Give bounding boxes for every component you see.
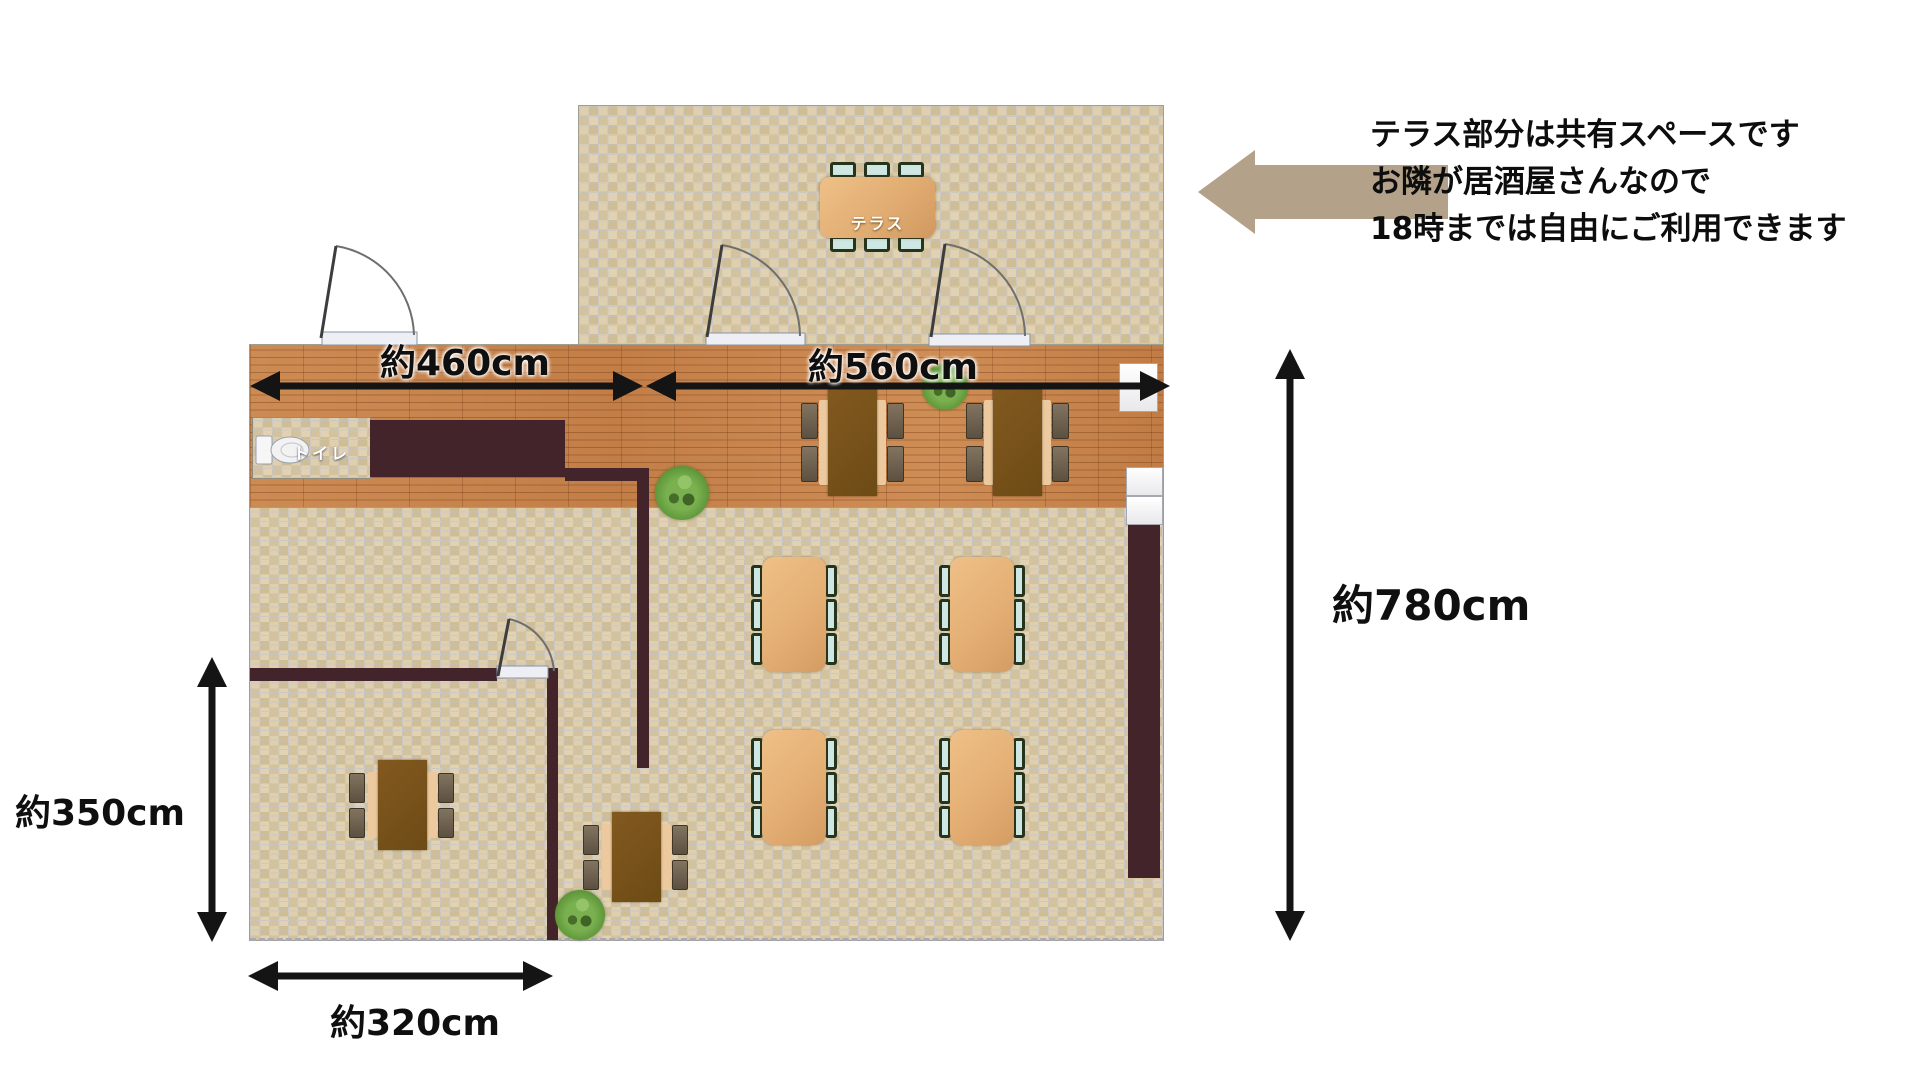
chair [898,236,924,252]
chair [864,236,890,252]
chair [825,738,837,770]
terrace-table-label: テラス [820,210,935,234]
chair [864,162,890,178]
dimension-label-560: 約560cm [808,338,978,390]
chair [1013,599,1025,631]
chair [801,446,818,482]
chair [1013,772,1025,804]
window-box [1119,363,1158,412]
plan-bottom-boundary [250,938,1163,941]
chair [966,446,983,482]
door-top-left [321,246,417,345]
chair [1052,446,1069,482]
chair [1013,738,1025,770]
left-room-right-wall [547,668,558,940]
chair [825,599,837,631]
dimension-label-350: 約350cm [15,784,185,836]
dining-table [762,730,826,845]
annotation-line-3: 18時までは自由にご利用できます [1370,206,1847,253]
dining-table [950,730,1014,845]
chair [887,446,904,482]
chair [830,162,856,178]
chair [438,808,454,838]
plant [655,466,709,520]
dining-table [378,760,427,850]
chair [1013,565,1025,597]
chair [672,860,688,890]
terrace-table: テラス [820,177,935,238]
chair [672,825,688,855]
annotation-line-1: テラス部分は共有スペースです [1370,112,1847,159]
chair [1052,403,1069,439]
chair [825,806,837,838]
center-partition-wall [637,468,649,768]
dining-table [612,812,661,902]
chair [825,565,837,597]
annotation-line-2: お隣が居酒屋さんなので [1370,159,1847,206]
kitchen-counter [370,420,565,477]
bench [1041,400,1051,485]
dining-table [828,389,877,496]
left-room-top-wall [250,668,497,681]
dimension-label-460: 約460cm [380,334,550,386]
chair [825,772,837,804]
chair [349,808,365,838]
chair [898,162,924,178]
dining-table [762,557,826,672]
plant [555,890,605,940]
chair [583,825,599,855]
chair [1013,633,1025,665]
chair [887,403,904,439]
main-floor-area [250,508,1163,940]
dimension-label-320: 約320cm [330,994,500,1046]
chair [966,403,983,439]
cabinet-upper [1126,467,1163,496]
dining-table [993,389,1042,496]
floorplan-canvas: テラス [0,0,1920,1080]
chair [438,773,454,803]
chair [349,773,365,803]
chair [583,860,599,890]
dining-table [950,557,1014,672]
chair [830,236,856,252]
bench [661,824,671,890]
toilet-label: トイレ [293,440,350,464]
bench [427,772,437,838]
chair [825,633,837,665]
chair [801,403,818,439]
dimension-label-780: 約780cm [1332,572,1530,633]
right-side-wall [1128,523,1160,878]
bench [602,824,612,890]
cabinet-lower [1126,496,1163,525]
terrace-annotation: テラス部分は共有スペースです お隣が居酒屋さんなので 18時までは自由にご利用で… [1370,112,1847,253]
bench [368,772,378,838]
bench [876,400,886,485]
chair [1013,806,1025,838]
